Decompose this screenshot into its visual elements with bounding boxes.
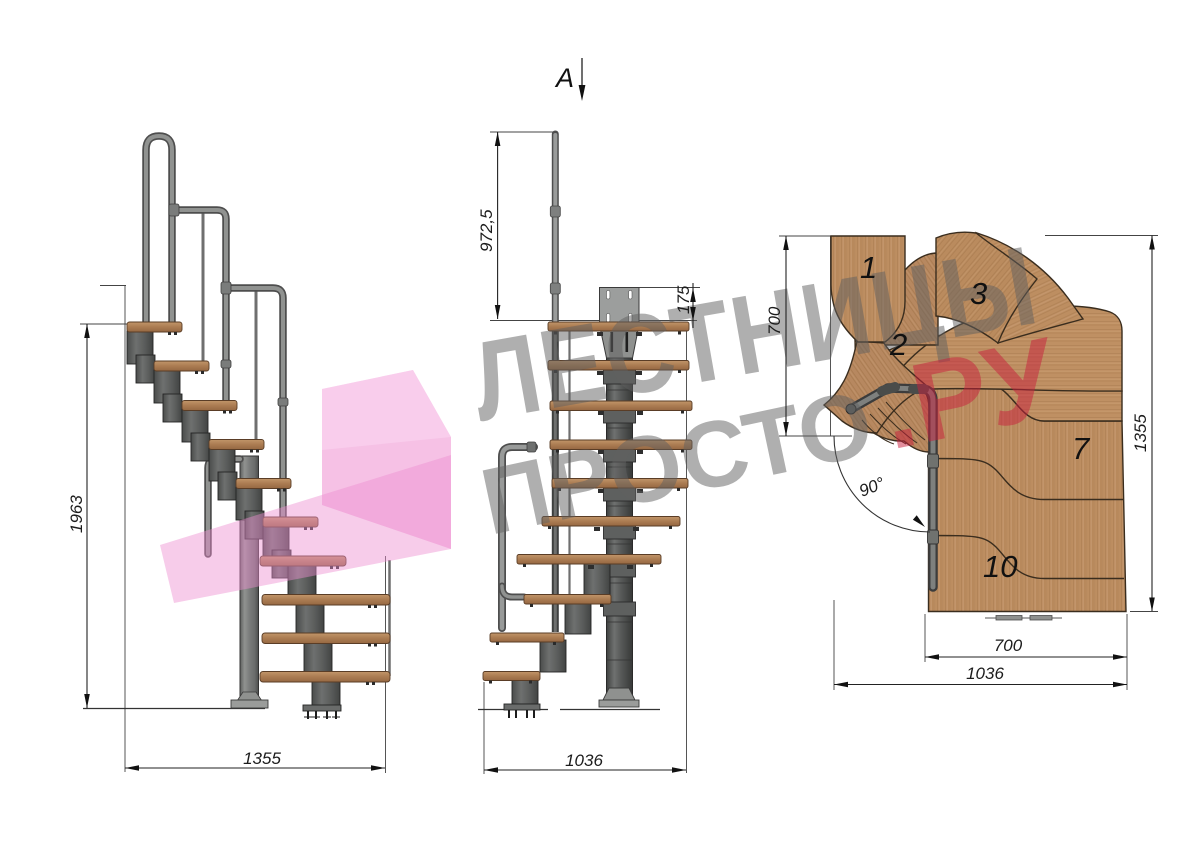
svg-text:1036: 1036	[565, 751, 603, 770]
svg-text:700: 700	[765, 306, 784, 335]
svg-text:1355: 1355	[1131, 414, 1150, 452]
svg-text:1355: 1355	[243, 749, 281, 768]
svg-text:A: A	[554, 63, 574, 93]
svg-text:1963: 1963	[67, 495, 86, 533]
svg-text:1036: 1036	[966, 664, 1004, 683]
svg-text:3: 3	[970, 276, 987, 311]
svg-text:700: 700	[994, 636, 1023, 655]
svg-text:972,5: 972,5	[477, 209, 496, 252]
svg-text:2: 2	[889, 327, 907, 362]
svg-text:175: 175	[674, 285, 693, 314]
svg-text:10: 10	[983, 549, 1017, 584]
svg-text:90°: 90°	[856, 473, 887, 500]
svg-text:1: 1	[860, 250, 877, 285]
svg-text:7: 7	[1072, 431, 1091, 466]
